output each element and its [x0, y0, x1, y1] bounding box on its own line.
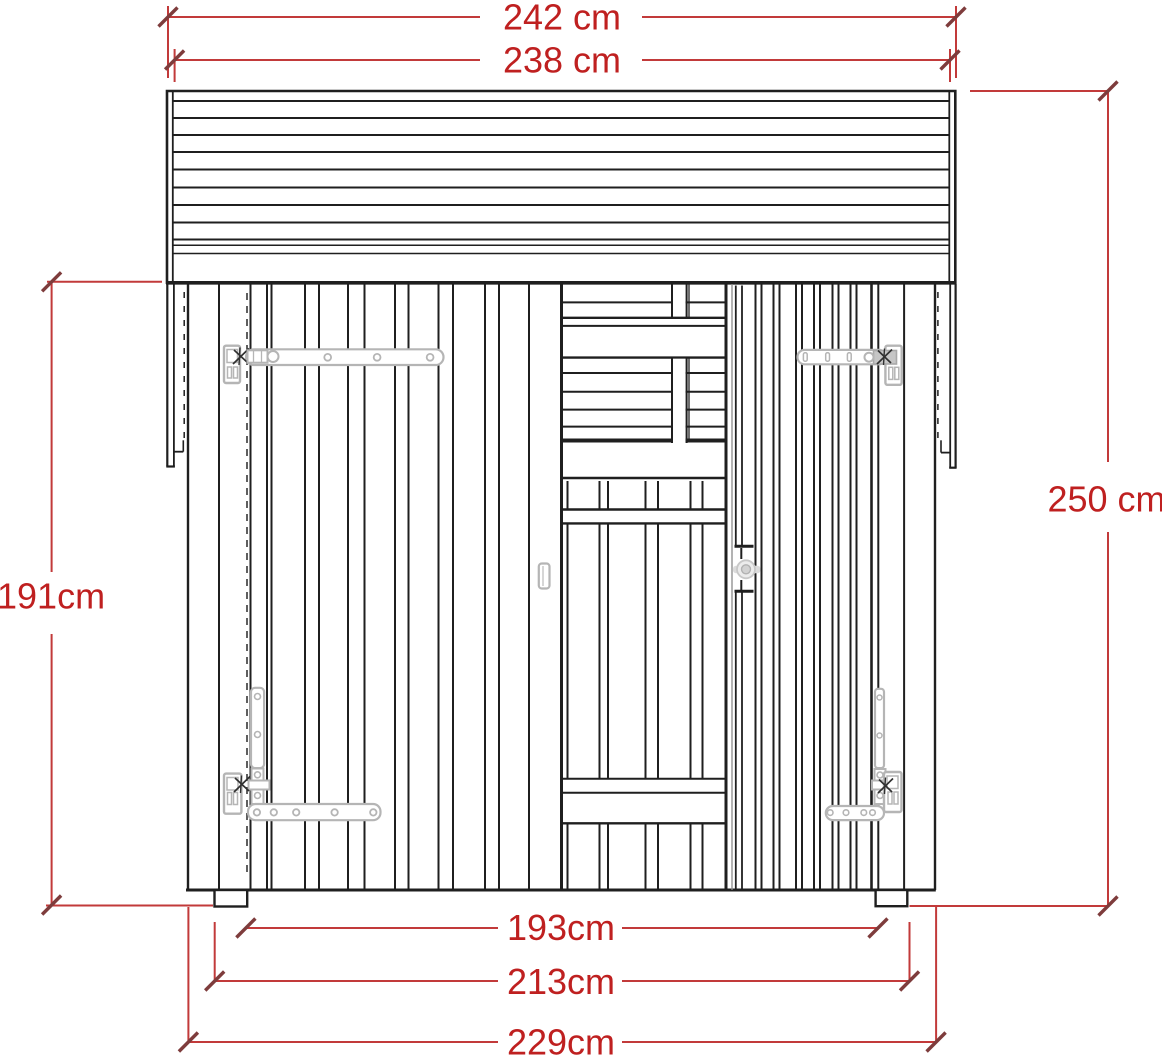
svg-text:242 cm: 242 cm [503, 0, 621, 38]
svg-text:191cm: 191cm [0, 576, 105, 617]
svg-text:213cm: 213cm [507, 961, 615, 1002]
svg-text:229cm: 229cm [507, 1022, 615, 1059]
svg-text:238 cm: 238 cm [503, 39, 621, 80]
svg-text:250 cm: 250 cm [1047, 479, 1162, 520]
svg-text:193cm: 193cm [507, 907, 615, 948]
